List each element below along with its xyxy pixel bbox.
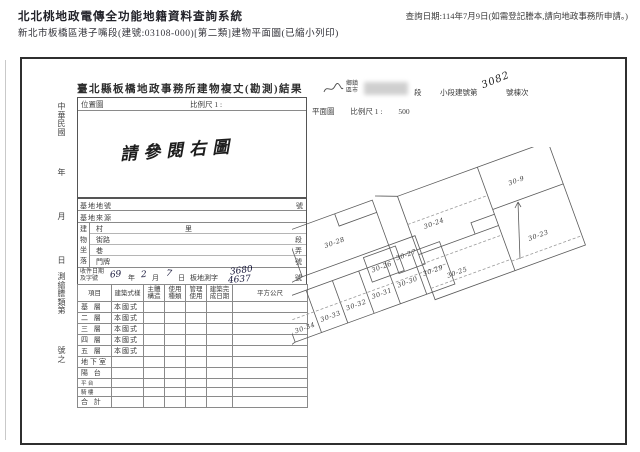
margin-doc-label: 測繪謄類第 xyxy=(56,273,67,316)
parcel-label: 30-30 xyxy=(396,275,419,290)
building-id-row: 鄉鎮區市 段 小段建號第 3082 號棟次 xyxy=(312,79,622,103)
building-location-rows: 村 里 街路 段 巷 弄 門牌 號 xyxy=(90,223,306,267)
table-row: 騎 樓 xyxy=(78,388,308,397)
style-cell: 本國式 xyxy=(112,346,144,357)
lane-row: 巷 弄 xyxy=(90,245,306,256)
col-structure: 主體構造 xyxy=(144,285,165,302)
floor-cell: 五 層 xyxy=(78,346,112,357)
form-title: 臺北縣板橋地政事務所建物複丈(勘測)結果 xyxy=(77,81,303,96)
parcel-label: 30-9 xyxy=(507,174,525,187)
floor-cell: 騎 樓 xyxy=(78,388,112,397)
floor-cell: 二 層 xyxy=(78,313,112,324)
floor-plan-drawing: 30-24 30-9 30-23 30-25 30-28 30-26 30-27… xyxy=(292,147,632,377)
floor-cell: 地下室 xyxy=(78,357,112,368)
lot-number-label: 基地地號 xyxy=(80,201,112,211)
section-label: 段 xyxy=(414,87,422,98)
month-unit: 月 xyxy=(152,273,159,283)
style-cell xyxy=(112,397,144,408)
document-subtitle: 新北市板橋區港子嘴段(建號:03108-000)[第二類]建物平面圖(已縮小列印… xyxy=(18,25,339,39)
table-row: 基 層本國式 xyxy=(78,302,308,313)
margin-month: 月 xyxy=(56,213,67,222)
parcel-label: 30-31 xyxy=(370,286,393,301)
subsection-label: 小段建號第 xyxy=(440,87,478,98)
parcel-label: 30-23 xyxy=(527,228,550,243)
village-row: 村 里 xyxy=(90,223,306,234)
village-suffix: 里 xyxy=(185,224,192,234)
survey-table: 項目 建築式樣 主體構造 使用種類 管理使用 建築完成日期 平方公尺 基 層本國… xyxy=(77,284,308,408)
floor-cell: 四 層 xyxy=(78,335,112,346)
handwritten-see-right-note: 請參閱右圖 xyxy=(119,132,235,165)
style-cell xyxy=(112,379,144,388)
parcel-label: 30-28 xyxy=(323,235,346,250)
table-header-row: 項目 建築式樣 主體構造 使用種類 管理使用 建築完成日期 平方公尺 xyxy=(78,285,308,302)
parcel-label: 30-24 xyxy=(423,216,446,231)
parcel-label: 30-33 xyxy=(319,309,342,324)
margin-era: 中華民國 xyxy=(56,103,67,137)
year-unit: 年 xyxy=(128,273,135,283)
style-cell xyxy=(112,368,144,379)
parcel-labels: 30-24 30-9 30-23 30-25 30-28 30-26 30-27… xyxy=(292,169,552,335)
door-row: 門牌 號 xyxy=(90,256,306,267)
parcel-label: 30-32 xyxy=(345,298,368,313)
redacted-area xyxy=(364,82,408,95)
day-unit: 日 xyxy=(178,273,185,283)
reference-line xyxy=(515,202,521,259)
table-row: 合 計 xyxy=(78,397,308,408)
style-cell xyxy=(112,388,144,397)
lot-source-label: 基地來源 xyxy=(80,213,112,223)
parcel-outlines xyxy=(292,147,600,358)
floor-cell: 合 計 xyxy=(78,397,112,408)
margin-day: 日 xyxy=(56,257,67,266)
building-location-label: 建物坐落 xyxy=(78,223,90,267)
floor-cell: 陽 台 xyxy=(78,368,112,379)
street-row: 街路 段 xyxy=(90,234,306,245)
location-map-label: 位置圖 xyxy=(81,99,104,110)
handwritten-day: 7 xyxy=(165,269,172,280)
building-location-group: 建物坐落 村 里 街路 段 巷 弄 門牌 xyxy=(78,223,306,268)
style-cell: 本國式 xyxy=(112,313,144,324)
plan-scale-label: 比例尺 1 : xyxy=(350,107,382,116)
receipt-row: 收件日期 及字號 69 年 2 月 7 日 板地測字 3680 4637 號 xyxy=(78,268,306,285)
table-row: 平 台 xyxy=(78,379,308,388)
site-info-block: 基地地號 號 基地來源 建物坐落 村 里 街路 段 xyxy=(77,198,307,285)
building-suffix-label: 號棟次 xyxy=(506,87,529,98)
margin-year: 年 xyxy=(56,169,67,178)
style-cell: 本國式 xyxy=(112,302,144,313)
location-map-box: 位置圖 比例尺 1 : 請參閱右圖 xyxy=(77,97,307,198)
scan-edge-artifact xyxy=(5,60,6,440)
receipt-label-line2: 及字號 xyxy=(80,276,104,283)
table-row: 陽 台 xyxy=(78,368,308,379)
table-row: 五 層本國式 xyxy=(78,346,308,357)
plan-scale-value: 500 xyxy=(398,107,409,116)
floor-cell: 三 層 xyxy=(78,324,112,335)
style-cell xyxy=(112,357,144,368)
style-cell: 本國式 xyxy=(112,324,144,335)
table-row: 二 層本國式 xyxy=(78,313,308,324)
village-label: 村 xyxy=(96,224,103,234)
col-completed: 建築完成日期 xyxy=(207,285,233,302)
table-row: 地下室 xyxy=(78,357,308,368)
lot-source-row: 基地來源 xyxy=(78,211,306,223)
district-label: 鄉鎮區市 xyxy=(346,81,360,95)
system-title: 北北桃地政電傳全功能地籍資料查詢系統 xyxy=(18,8,243,24)
col-manage: 管理使用 xyxy=(186,285,207,302)
receipt-label-line1: 收件日期 xyxy=(80,269,104,276)
receipt-word-label: 板地測字 xyxy=(190,273,218,283)
receipt-label: 收件日期 及字號 xyxy=(80,269,104,283)
plan-scale-row: 平面圖 比例尺 1 : 500 xyxy=(312,106,424,117)
page: 北北桃地政電傳全功能地籍資料查詢系統 查詢日期:114年7月9日(如需登記謄本,… xyxy=(0,0,640,452)
style-cell: 本國式 xyxy=(112,335,144,346)
parcel-label: 30-34 xyxy=(294,321,317,336)
parcel-label: 30-26 xyxy=(370,260,393,275)
street-label: 街路 xyxy=(96,235,110,245)
table-row: 三 層本國式 xyxy=(78,324,308,335)
location-scale-label: 比例尺 1 : xyxy=(190,99,222,110)
lot-number-row: 基地地號 號 xyxy=(78,199,306,211)
floor-cell: 基 層 xyxy=(78,302,112,313)
floor-cell: 平 台 xyxy=(78,379,112,388)
handwritten-month: 2 xyxy=(141,270,147,280)
plan-label: 平面圖 xyxy=(312,107,335,116)
handwritten-scribble xyxy=(322,82,344,96)
col-usage: 使用種類 xyxy=(165,285,186,302)
margin-doc-suffix: 號之 xyxy=(56,347,67,364)
col-style: 建築式樣 xyxy=(112,285,144,302)
parcel-label: 30-29 xyxy=(422,263,445,278)
lane-label: 巷 xyxy=(96,246,103,256)
query-date: 查詢日期:114年7月9日(如需登記謄本,請向地政事務所申請。) xyxy=(406,10,628,22)
handwritten-year: 69 xyxy=(110,269,122,280)
door-plate-label: 門牌 xyxy=(96,257,110,267)
table-row: 四 層本國式 xyxy=(78,335,308,346)
scanned-form: 臺北縣板橋地政事務所建物複丈(勘測)結果 中華民國 年 月 日 測繪謄類第 號之… xyxy=(20,57,627,445)
location-box-header: 位置圖 比例尺 1 : xyxy=(78,98,306,111)
col-item: 項目 xyxy=(78,285,112,302)
